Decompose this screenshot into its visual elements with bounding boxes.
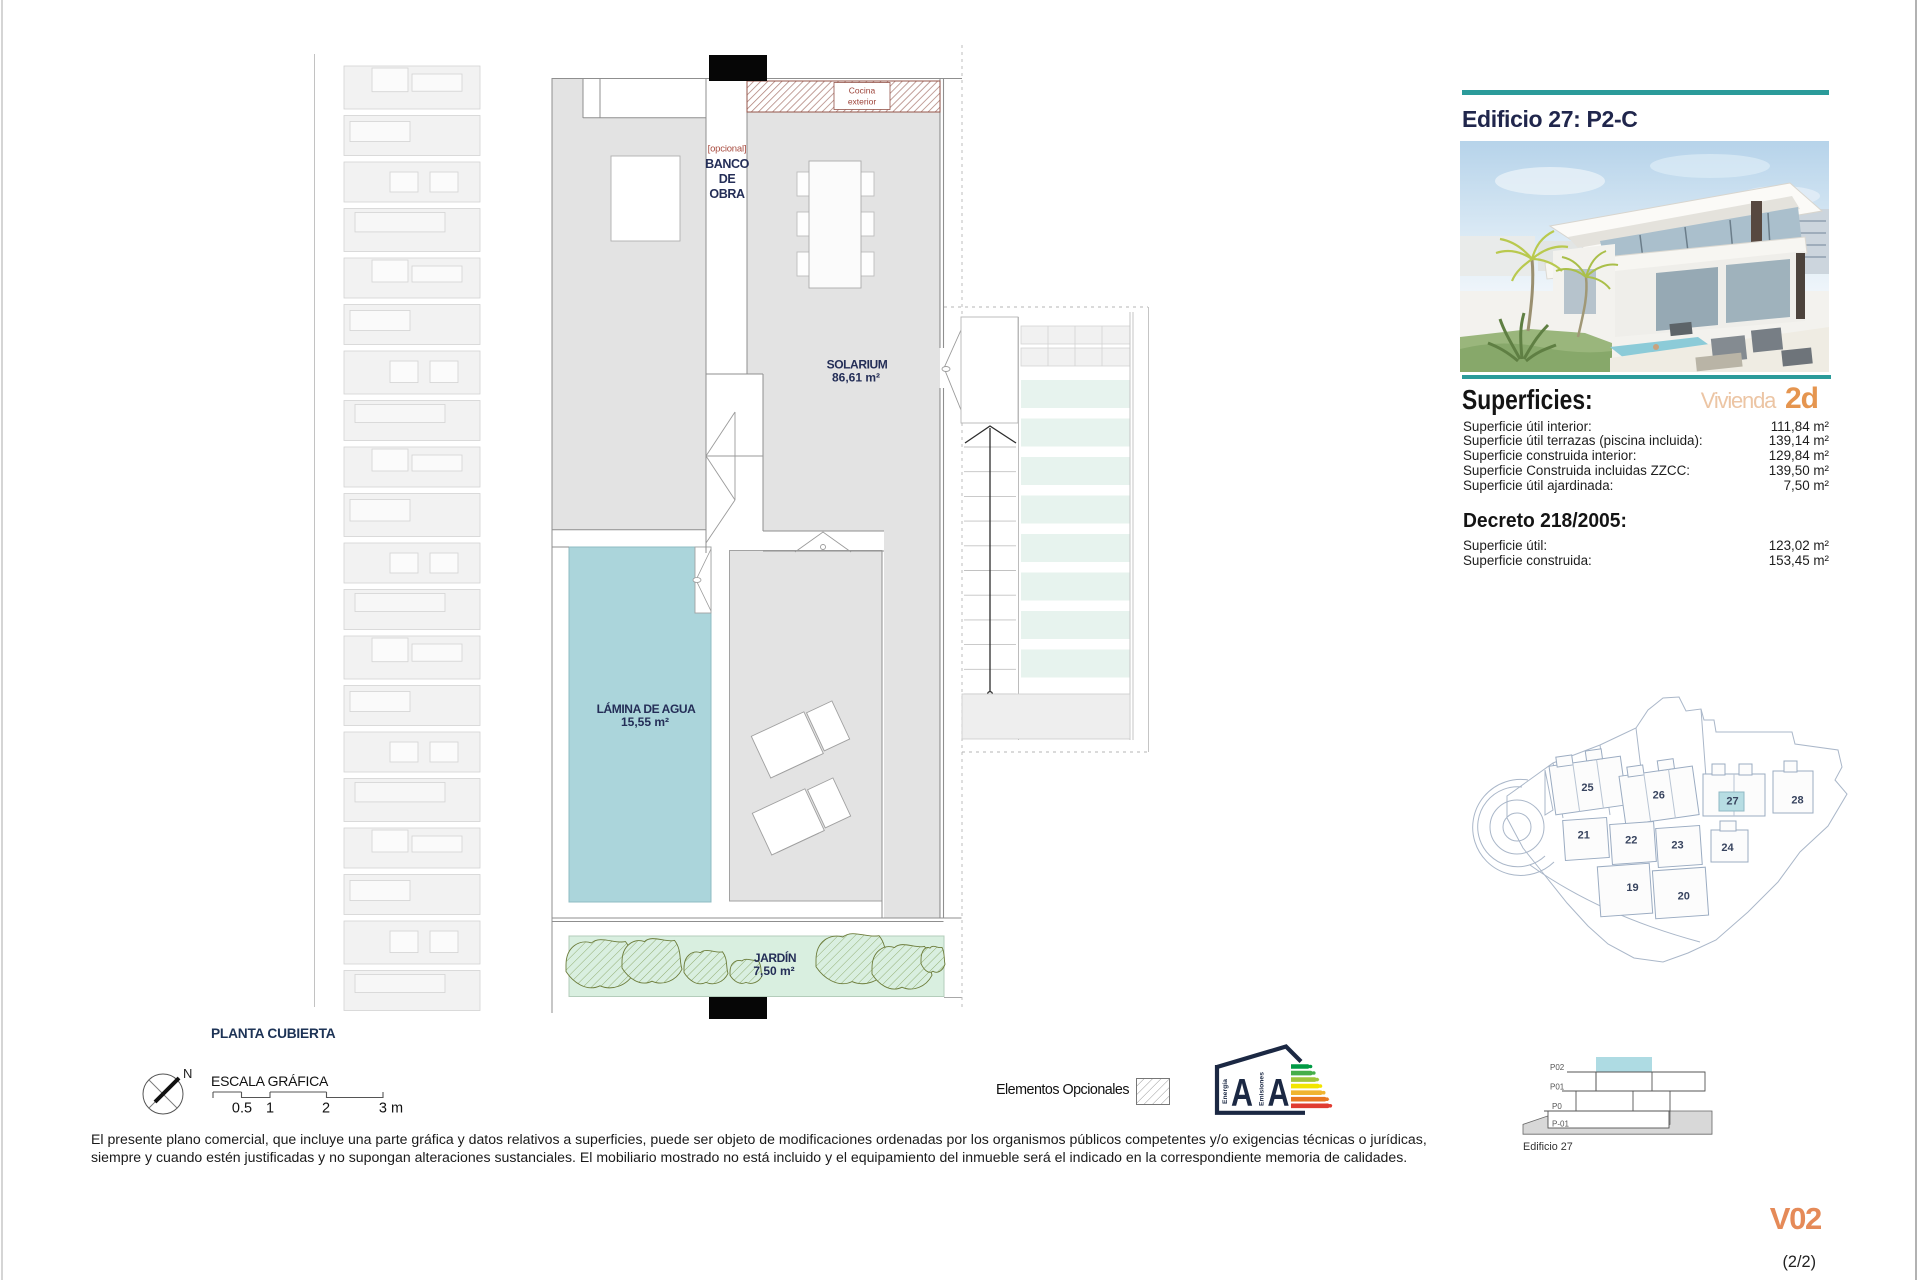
svg-text:P01: P01 [1550,1083,1565,1092]
svg-text:15,55 m²: 15,55 m² [621,715,669,729]
svg-text:2: 2 [322,1101,330,1117]
svg-text:Cocina: Cocina [849,86,876,96]
svg-text:P02: P02 [1550,1063,1565,1072]
svg-text:A: A [1268,1072,1290,1115]
svg-text:Energía: Energía [1222,1079,1229,1104]
svg-text:22: 22 [1625,835,1637,847]
svg-text:25: 25 [1581,782,1593,794]
svg-text:24: 24 [1721,842,1734,854]
svg-text:BANCO: BANCO [705,157,750,171]
svg-text:26: 26 [1653,790,1665,802]
svg-text:1: 1 [266,1101,274,1117]
svg-text:N: N [183,1066,192,1081]
svg-text:Edificio 27: Edificio 27 [1523,1141,1573,1153]
svg-text:Emisiones: Emisiones [1259,1072,1266,1106]
svg-text:LÁMINA DE AGUA: LÁMINA DE AGUA [597,701,697,716]
svg-text:3 m: 3 m [379,1101,403,1117]
svg-text:DE: DE [719,172,736,186]
svg-text:[opcional]: [opcional] [708,144,747,155]
svg-text:7,50 m²: 7,50 m² [753,964,794,978]
svg-text:21: 21 [1578,830,1590,842]
svg-text:27: 27 [1726,796,1738,808]
svg-text:19: 19 [1626,882,1638,894]
svg-text:86,61 m²: 86,61 m² [832,370,880,384]
svg-text:23: 23 [1671,840,1683,852]
svg-text:P0: P0 [1552,1102,1562,1111]
svg-text:20: 20 [1678,891,1690,903]
svg-text:JARDÍN: JARDÍN [754,950,796,965]
svg-text:exterior: exterior [848,97,877,107]
svg-text:OBRA: OBRA [709,187,745,201]
svg-text:28: 28 [1791,795,1803,807]
svg-text:A: A [1231,1072,1253,1115]
svg-text:0.5: 0.5 [232,1101,252,1117]
svg-text:P-01: P-01 [1552,1120,1569,1129]
